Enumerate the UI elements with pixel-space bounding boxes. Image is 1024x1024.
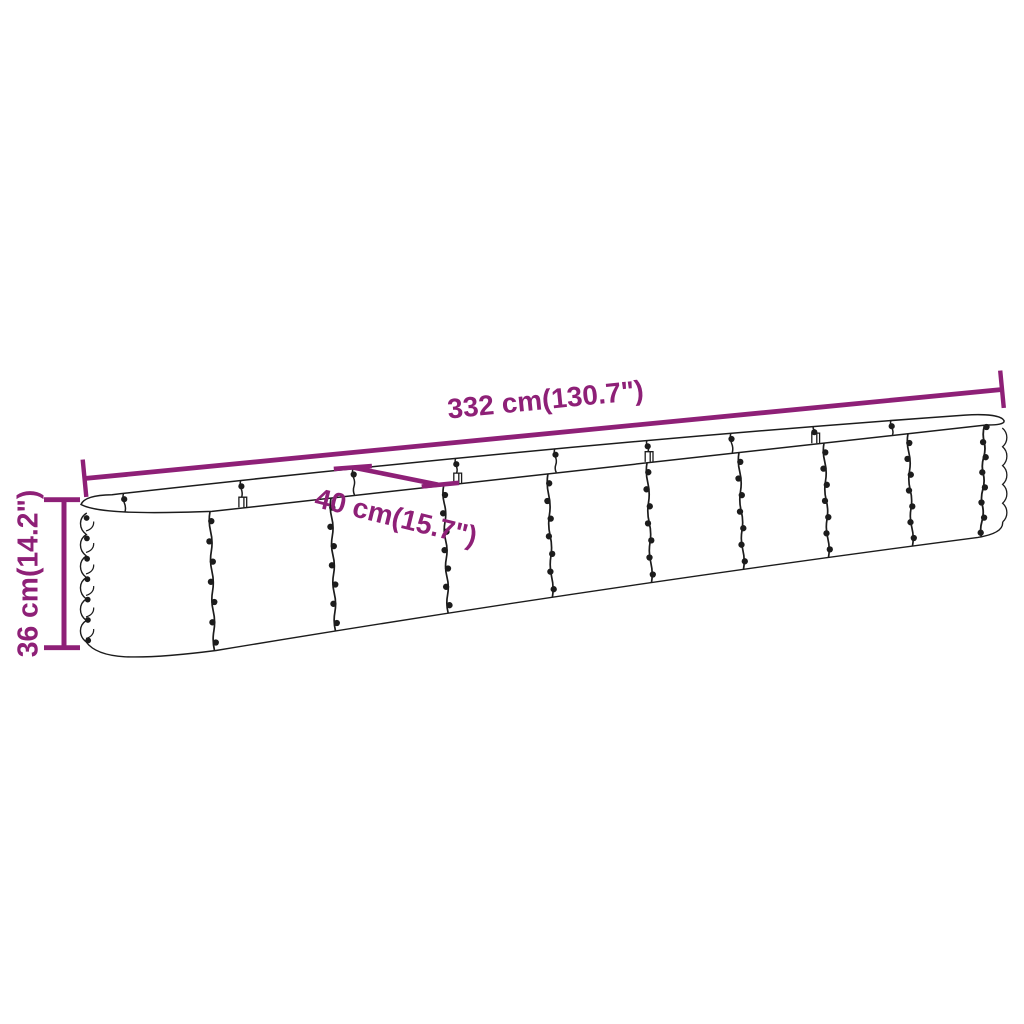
svg-text:40 cm(15.7"): 40 cm(15.7")	[312, 482, 480, 552]
svg-text:36 cm(14.2"): 36 cm(14.2")	[12, 490, 44, 658]
svg-text:332 cm(130.7"): 332 cm(130.7")	[446, 374, 645, 424]
